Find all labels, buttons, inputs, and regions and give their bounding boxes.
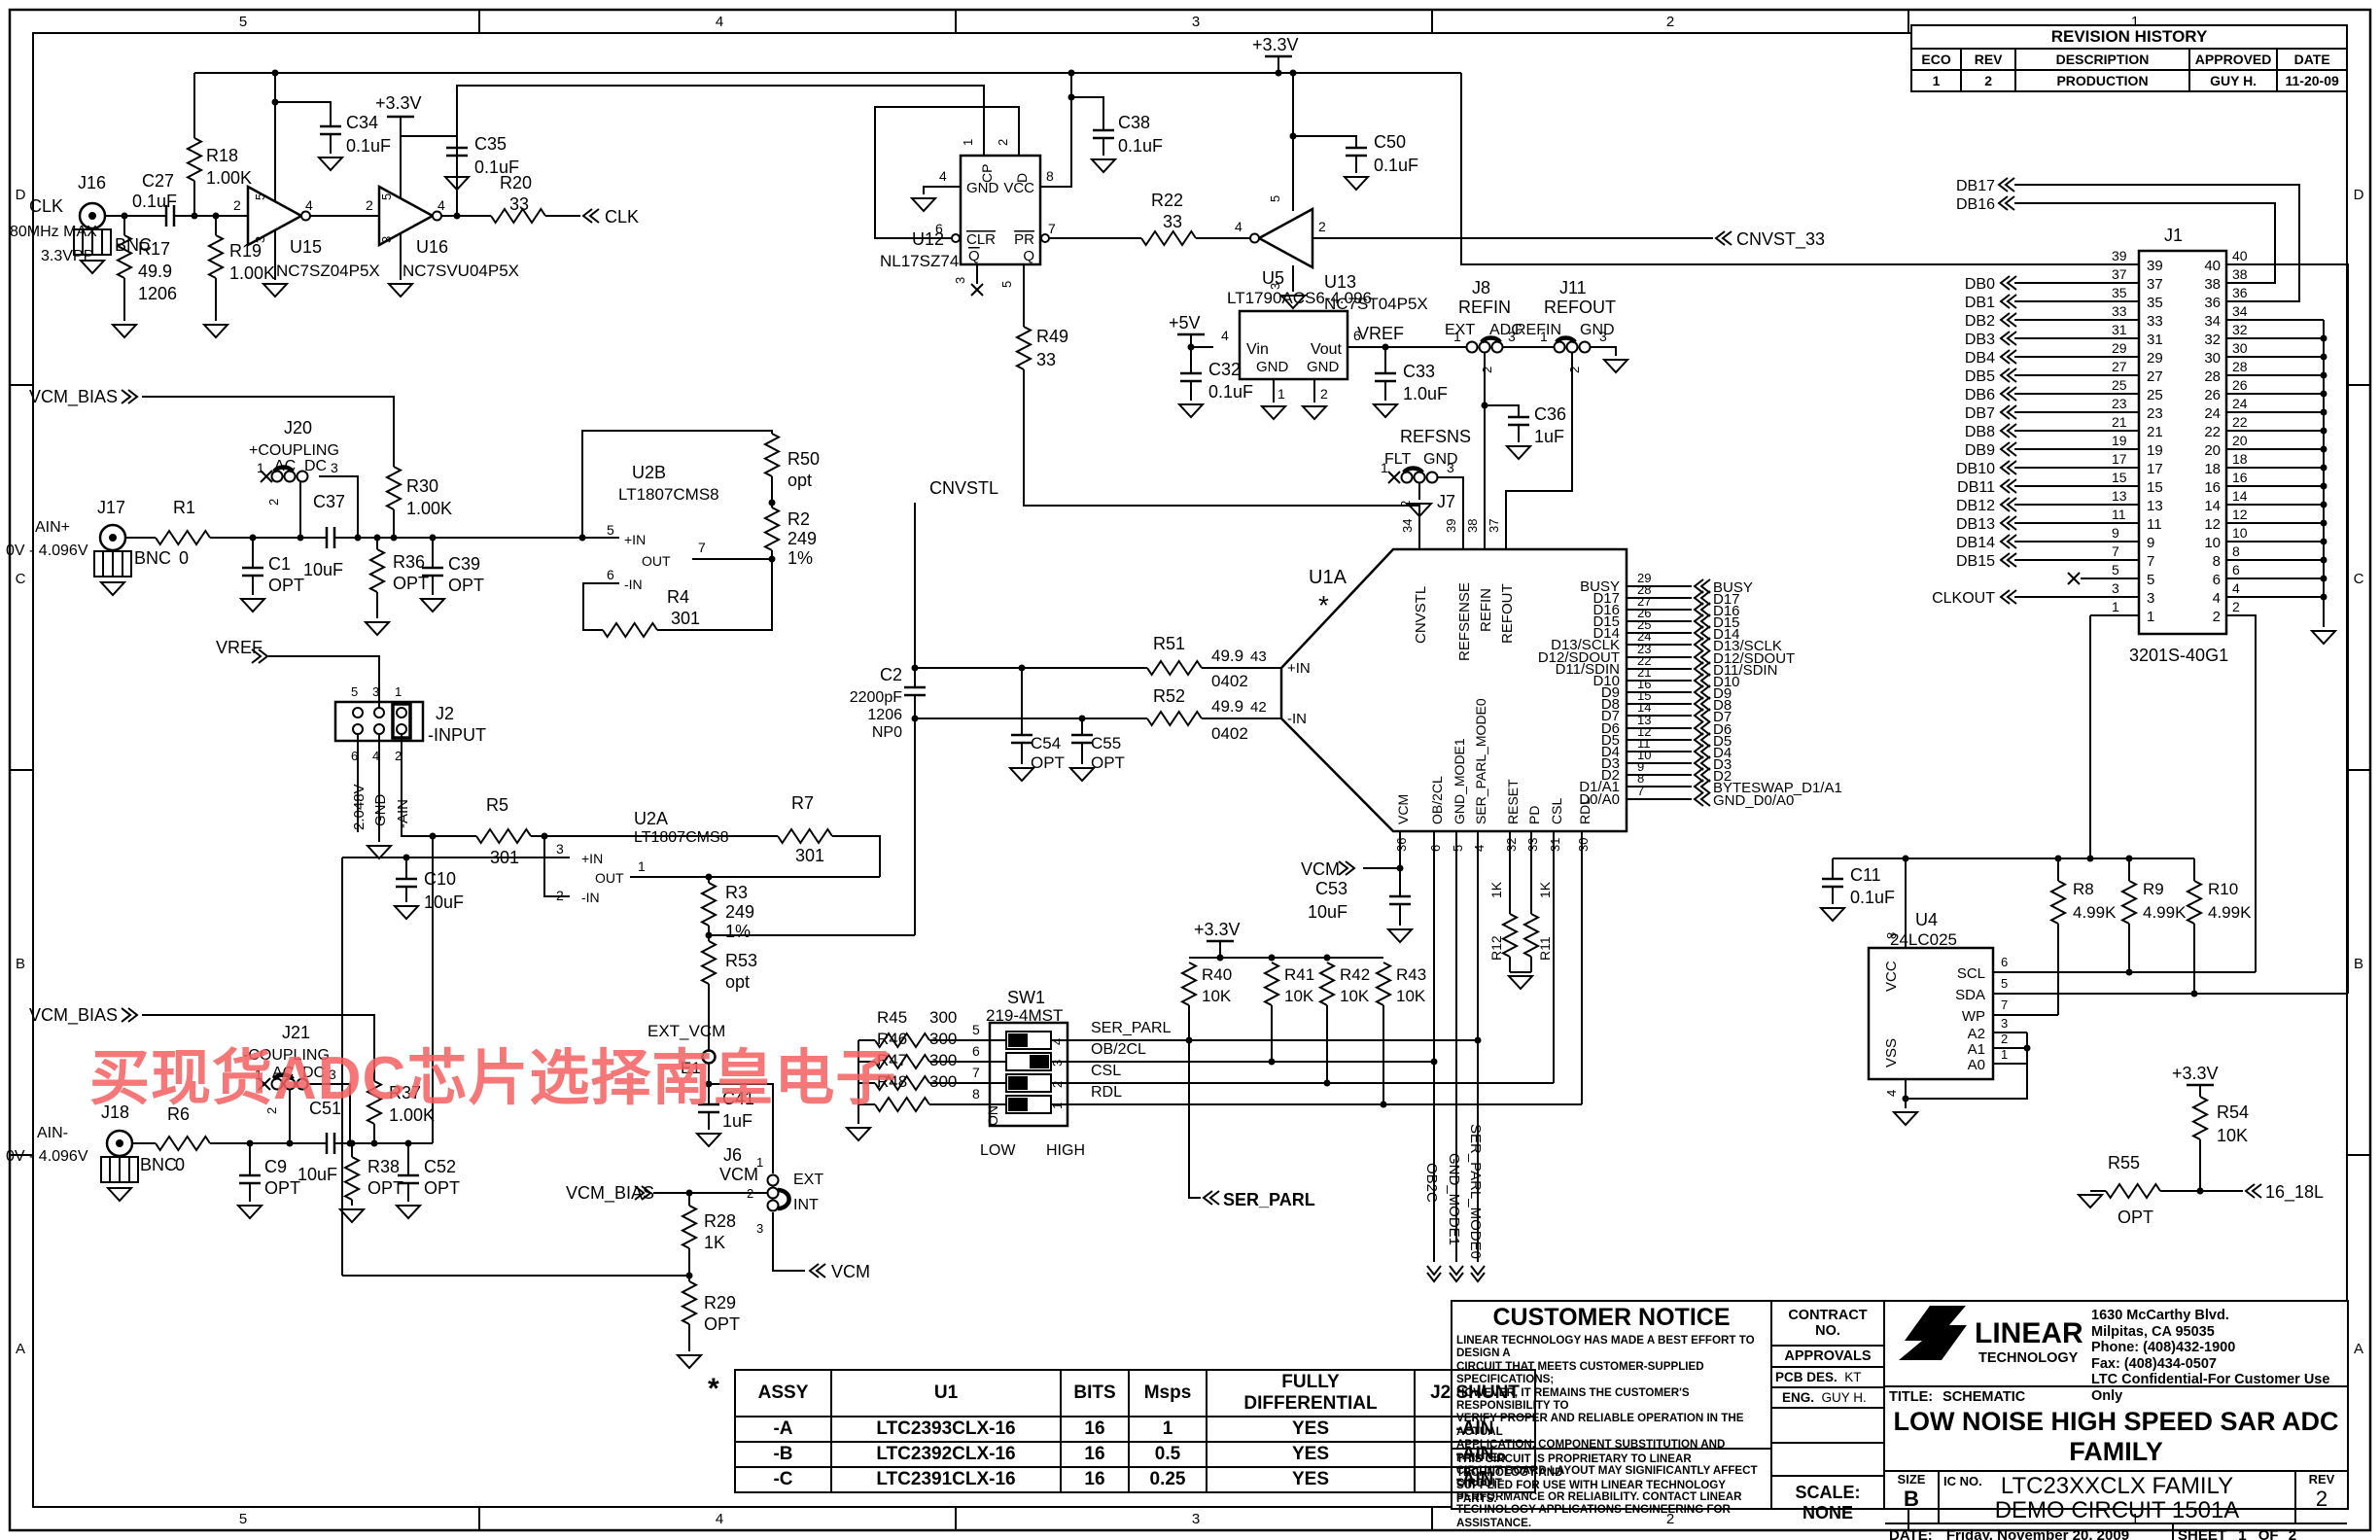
svg-text:AIN+: AIN+ bbox=[35, 519, 70, 536]
svg-text:1: 1 bbox=[2112, 599, 2119, 614]
approvals-label: APPROVALS bbox=[1772, 1347, 1883, 1368]
svg-text:+3.3V: +3.3V bbox=[1194, 920, 1241, 939]
svg-text:3: 3 bbox=[1447, 460, 1454, 475]
svg-text:J7: J7 bbox=[1437, 492, 1455, 511]
pcb-des-row: PCB DES. KT bbox=[1772, 1368, 1883, 1388]
svg-text:1.00K: 1.00K bbox=[406, 499, 452, 518]
svg-text:30: 30 bbox=[2204, 350, 2221, 367]
svg-text:16_18L: 16_18L bbox=[2265, 1182, 2324, 1203]
svg-text:4: 4 bbox=[2232, 580, 2240, 596]
svg-text:SCL: SCL bbox=[1957, 965, 1985, 982]
svg-text:0402: 0402 bbox=[1211, 724, 1248, 743]
svg-text:CLK: CLK bbox=[605, 207, 639, 227]
svg-text:7: 7 bbox=[2147, 553, 2154, 570]
svg-text:5: 5 bbox=[2147, 572, 2154, 588]
svg-text:SER_PARL_MODE0: SER_PARL_MODE0 bbox=[1467, 1124, 1484, 1259]
assy-col-header: BITS bbox=[1061, 1370, 1129, 1417]
svg-text:29: 29 bbox=[2147, 350, 2163, 367]
schematic-sheet: 5544332211DDCCBBAA4321BUSY29BUSYD1728D17… bbox=[0, 0, 2380, 1540]
svg-text:A0: A0 bbox=[1968, 1057, 1985, 1073]
svg-text:CLK: CLK bbox=[29, 196, 63, 216]
svg-text:1: 1 bbox=[2001, 1047, 2008, 1062]
svg-text:J6: J6 bbox=[723, 1145, 742, 1165]
svg-text:OPT: OPT bbox=[264, 1178, 300, 1198]
svg-text:VREF: VREF bbox=[216, 638, 262, 657]
svg-text:5: 5 bbox=[2001, 976, 2008, 991]
assy-row: -BLTC2392CLX-16160.5YES-AIN bbox=[735, 1442, 1535, 1467]
svg-text:5: 5 bbox=[1451, 845, 1465, 852]
svg-text:7: 7 bbox=[1048, 221, 1056, 236]
svg-text:5: 5 bbox=[972, 1022, 980, 1037]
svg-text:B: B bbox=[16, 956, 25, 972]
svg-text:GND: GND bbox=[1580, 322, 1615, 338]
svg-text:1%: 1% bbox=[725, 922, 751, 941]
svg-text:3: 3 bbox=[1599, 329, 1607, 344]
svg-text:GND: GND bbox=[372, 794, 389, 827]
svg-text:C39: C39 bbox=[448, 554, 480, 574]
offpage-chevron bbox=[2001, 313, 2016, 327]
svg-text:80MHz MAX: 80MHz MAX bbox=[10, 224, 97, 240]
offpage-chevron bbox=[2001, 387, 2016, 401]
svg-text:3: 3 bbox=[331, 460, 338, 475]
svg-text:7: 7 bbox=[2112, 543, 2119, 559]
svg-text:22: 22 bbox=[2204, 424, 2221, 440]
main-title: LOW NOISE HIGH SPEED SAR ADC FAMILY bbox=[1885, 1407, 2347, 1472]
svg-text:R12: R12 bbox=[1488, 935, 1504, 961]
svg-text:U2A: U2A bbox=[634, 809, 668, 828]
svg-text:DB8: DB8 bbox=[1965, 424, 1995, 440]
svg-text:R41: R41 bbox=[1284, 965, 1314, 984]
svg-text:SW1: SW1 bbox=[1007, 988, 1045, 1007]
svg-text:R43: R43 bbox=[1396, 965, 1426, 984]
svg-text:38: 38 bbox=[1465, 519, 1480, 533]
svg-text:LT1807CMS8: LT1807CMS8 bbox=[618, 485, 719, 504]
inverter-u13 bbox=[1250, 209, 1312, 267]
svg-text:0: 0 bbox=[179, 548, 189, 568]
svg-text:PR: PR bbox=[1014, 231, 1034, 248]
svg-text:VSS: VSS bbox=[1883, 1038, 1900, 1067]
svg-text:R3: R3 bbox=[725, 883, 748, 902]
svg-text:1uF: 1uF bbox=[1534, 427, 1564, 446]
svg-text:-IN: -IN bbox=[581, 890, 600, 905]
svg-text:25: 25 bbox=[2112, 377, 2127, 393]
offpage-chevron bbox=[1450, 1266, 1463, 1281]
svg-text:0402: 0402 bbox=[1211, 672, 1248, 690]
svg-text:R40: R40 bbox=[1202, 965, 1232, 984]
svg-text:7: 7 bbox=[2001, 997, 2008, 1012]
svg-text:DB14: DB14 bbox=[1956, 535, 1995, 551]
svg-text:18: 18 bbox=[2232, 451, 2248, 467]
svg-text:CNVST_33: CNVST_33 bbox=[1736, 229, 1825, 250]
svg-text:ON: ON bbox=[985, 1105, 1000, 1126]
svg-text:U2B: U2B bbox=[632, 463, 666, 482]
svg-text:1K: 1K bbox=[1537, 881, 1553, 898]
svg-text:23: 23 bbox=[2147, 405, 2163, 422]
svg-text:13: 13 bbox=[2147, 498, 2163, 514]
ic-line1: LTC23XXCLX FAMILY bbox=[1940, 1474, 2294, 1498]
svg-text:1206: 1206 bbox=[867, 707, 902, 723]
svg-text:32: 32 bbox=[2204, 332, 2221, 348]
svg-text:0: 0 bbox=[175, 1155, 185, 1174]
svg-text:+3.3V: +3.3V bbox=[1252, 35, 1299, 54]
svg-text:CSL: CSL bbox=[1091, 1063, 1121, 1079]
svg-text:2: 2 bbox=[747, 1186, 753, 1201]
svg-text:49.9: 49.9 bbox=[138, 262, 172, 281]
svg-text:11: 11 bbox=[2147, 516, 2162, 533]
svg-text:3: 3 bbox=[379, 236, 394, 243]
eng-row: ENG. GUY H. bbox=[1772, 1388, 1883, 1409]
svg-text:10K: 10K bbox=[1284, 987, 1314, 1005]
svg-text:14: 14 bbox=[2204, 498, 2221, 514]
svg-text:300: 300 bbox=[929, 1030, 957, 1048]
svg-text:5: 5 bbox=[253, 193, 267, 200]
svg-text:5: 5 bbox=[239, 1511, 247, 1527]
svg-text:*: * bbox=[1318, 590, 1329, 620]
svg-text:12: 12 bbox=[2232, 507, 2248, 522]
svg-text:7: 7 bbox=[972, 1065, 980, 1080]
svg-text:1: 1 bbox=[257, 460, 264, 475]
svg-text:DB1: DB1 bbox=[1965, 295, 1995, 311]
svg-text:2: 2 bbox=[1567, 367, 1582, 373]
svg-text:C55: C55 bbox=[1091, 734, 1121, 752]
svg-text:6: 6 bbox=[351, 749, 358, 763]
svg-text:DB5: DB5 bbox=[1965, 368, 1995, 385]
svg-text:1: 1 bbox=[2147, 609, 2154, 625]
svg-text:REFSENSE: REFSENSE bbox=[1456, 582, 1473, 661]
svg-text:22: 22 bbox=[2232, 414, 2248, 430]
svg-text:-INPUT: -INPUT bbox=[428, 725, 486, 745]
svg-text:21: 21 bbox=[2147, 424, 2163, 440]
svg-text:36: 36 bbox=[2204, 295, 2221, 311]
svg-text:24: 24 bbox=[2204, 405, 2221, 422]
svg-text:10K: 10K bbox=[1340, 987, 1370, 1005]
offpage-chevron bbox=[2001, 295, 2016, 308]
bnc-j17 bbox=[94, 525, 131, 595]
bnc-j18 bbox=[101, 1131, 138, 1201]
svg-text:Vin: Vin bbox=[1246, 341, 1269, 358]
svg-text:29: 29 bbox=[2112, 340, 2127, 356]
offpage-chevron bbox=[1427, 1266, 1441, 1281]
svg-text:A: A bbox=[16, 1341, 25, 1357]
svg-text:DB16: DB16 bbox=[1956, 196, 1995, 213]
svg-text:OPT: OPT bbox=[393, 574, 429, 593]
jumper-j11 bbox=[1555, 338, 1591, 353]
svg-text:R42: R42 bbox=[1340, 965, 1370, 984]
svg-text:D: D bbox=[1014, 173, 1030, 183]
svg-text:R49: R49 bbox=[1036, 327, 1068, 346]
svg-text:4: 4 bbox=[2213, 590, 2221, 607]
svg-text:2: 2 bbox=[996, 139, 1010, 146]
svg-text:VCM: VCM bbox=[1395, 794, 1411, 824]
svg-text:CNVSTL: CNVSTL bbox=[1413, 586, 1429, 644]
svg-text:36: 36 bbox=[2232, 285, 2248, 300]
svg-text:CP: CP bbox=[979, 164, 995, 183]
svg-text:+IN: +IN bbox=[1287, 660, 1311, 677]
svg-text:+IN: +IN bbox=[581, 851, 603, 866]
svg-text:OB/2CL: OB/2CL bbox=[1429, 776, 1445, 824]
assy-col-header: FULLY DIFFERENTIAL bbox=[1207, 1370, 1415, 1417]
svg-text:301: 301 bbox=[795, 846, 824, 865]
svg-text:3: 3 bbox=[1050, 1060, 1065, 1067]
icno-label: IC NO. bbox=[1943, 1474, 1982, 1488]
svg-text:0V - 4.096V: 0V - 4.096V bbox=[6, 1148, 88, 1165]
ic-number: LTC23XXCLX FAMILY DEMO CIRCUIT 1501A bbox=[1940, 1472, 2294, 1522]
svg-text:3: 3 bbox=[756, 1221, 763, 1236]
offpage-chevron bbox=[2001, 405, 2016, 419]
svg-text:33: 33 bbox=[1525, 838, 1540, 852]
svg-text:5: 5 bbox=[607, 522, 614, 538]
svg-text:REFIN: REFIN bbox=[1458, 297, 1511, 317]
svg-text:LT1807CMS8: LT1807CMS8 bbox=[634, 829, 729, 846]
svg-text:219-4MST: 219-4MST bbox=[986, 1006, 1063, 1025]
offpage-chevron bbox=[1999, 196, 2014, 210]
svg-text:49.9: 49.9 bbox=[1211, 647, 1243, 665]
svg-text:2: 2 bbox=[1050, 1081, 1065, 1088]
svg-text:C37: C37 bbox=[313, 492, 345, 511]
svg-text:2: 2 bbox=[1480, 367, 1494, 373]
svg-text:32: 32 bbox=[1504, 838, 1519, 852]
ic-line2: DEMO CIRCUIT 1501A bbox=[1940, 1498, 2294, 1522]
svg-text:A2: A2 bbox=[1968, 1026, 1985, 1042]
svg-text:49.9: 49.9 bbox=[1211, 697, 1243, 716]
svg-text:C1: C1 bbox=[268, 554, 291, 574]
assy-col-header: J2 SHUNT bbox=[1415, 1370, 1535, 1417]
svg-text:6: 6 bbox=[1428, 845, 1443, 852]
assy-rows: -ALTC2393CLX-16161YES-AIN-BLTC2392CLX-16… bbox=[735, 1417, 1535, 1492]
offpage-chevron bbox=[2001, 553, 2016, 567]
contract-no-label: CONTRACT NO. bbox=[1772, 1302, 1883, 1347]
date-value: Friday, November 20, 2009 bbox=[1937, 1527, 2129, 1540]
svg-text:18: 18 bbox=[2204, 461, 2221, 477]
svg-text:33: 33 bbox=[509, 194, 529, 214]
svg-text:C54: C54 bbox=[1031, 734, 1061, 752]
offpage-chevron bbox=[2001, 498, 2016, 511]
lt-logo: LINEAR TECHNOLOGY bbox=[1885, 1302, 2091, 1385]
svg-text:0V - 4.096V: 0V - 4.096V bbox=[6, 542, 88, 559]
svg-text:+IN: +IN bbox=[624, 532, 646, 547]
svg-text:R50: R50 bbox=[787, 449, 820, 469]
svg-text:4: 4 bbox=[1884, 1090, 1899, 1097]
svg-text:R17: R17 bbox=[138, 239, 170, 259]
svg-text:WP: WP bbox=[1962, 1008, 1985, 1025]
svg-text:-IN: -IN bbox=[624, 577, 643, 592]
svg-text:3: 3 bbox=[1192, 1511, 1200, 1527]
svg-text:VREF: VREF bbox=[1357, 324, 1404, 343]
svg-text:43: 43 bbox=[1250, 648, 1267, 665]
svg-text:40: 40 bbox=[2232, 248, 2248, 263]
svg-text:J1: J1 bbox=[2164, 226, 2183, 245]
svg-text:+3.3V: +3.3V bbox=[375, 93, 422, 113]
svg-text:8: 8 bbox=[2213, 553, 2221, 570]
svg-text:C2: C2 bbox=[880, 665, 902, 684]
svg-text:17: 17 bbox=[2147, 461, 2163, 477]
svg-text:23: 23 bbox=[2112, 396, 2127, 411]
jumper-j8 bbox=[1467, 338, 1503, 353]
svg-text:1: 1 bbox=[756, 1155, 763, 1170]
svg-text:4: 4 bbox=[716, 14, 723, 30]
svg-text:1206: 1206 bbox=[138, 284, 177, 303]
svg-text:11: 11 bbox=[2112, 507, 2126, 522]
offpage-chevron bbox=[2001, 368, 2016, 382]
svg-text:34: 34 bbox=[2204, 313, 2221, 330]
svg-text:5: 5 bbox=[999, 281, 1014, 288]
eng-label: ENG. bbox=[1782, 1390, 1814, 1405]
svg-text:4.99K: 4.99K bbox=[2143, 903, 2187, 922]
svg-text:35: 35 bbox=[2147, 295, 2163, 311]
svg-text:GND_D0/A0: GND_D0/A0 bbox=[1713, 792, 1794, 809]
assy-table-wrap: * ASSYU1BITSMspsFULLY DIFFERENTIALJ2 SHU… bbox=[708, 1369, 1536, 1493]
svg-text:13: 13 bbox=[2112, 488, 2127, 504]
svg-text:6: 6 bbox=[2001, 955, 2008, 969]
svg-text:OB/2CL: OB/2CL bbox=[1091, 1041, 1146, 1058]
title-value: SCHEMATIC bbox=[1937, 1389, 2025, 1405]
svg-text:U15: U15 bbox=[290, 237, 322, 257]
svg-text:16: 16 bbox=[2204, 479, 2221, 496]
svg-text:3: 3 bbox=[2001, 1016, 2008, 1031]
svg-text:opt: opt bbox=[787, 471, 812, 490]
svg-text:2: 2 bbox=[395, 749, 402, 763]
svg-text:R10: R10 bbox=[2208, 880, 2238, 898]
svg-text:7: 7 bbox=[698, 540, 706, 555]
labels-layer: BUSY29BUSYD1728D17D1627D16D1526D15D1425D… bbox=[6, 35, 2324, 1334]
svg-text:+5V: +5V bbox=[1169, 313, 1201, 332]
svg-text:R51: R51 bbox=[1153, 634, 1185, 653]
eng-value: GUY H. bbox=[1822, 1390, 1867, 1405]
svg-text:3: 3 bbox=[372, 684, 379, 699]
offpage-chevron bbox=[810, 1264, 825, 1277]
svg-text:opt: opt bbox=[725, 972, 750, 992]
svg-text:C9: C9 bbox=[264, 1157, 287, 1176]
svg-text:39: 39 bbox=[2112, 248, 2127, 263]
svg-text:0.1uF: 0.1uF bbox=[1850, 888, 1895, 907]
svg-text:1K: 1K bbox=[1488, 881, 1504, 898]
title-label: TITLE: bbox=[1889, 1389, 1933, 1405]
svg-text:5: 5 bbox=[2112, 562, 2119, 577]
svg-text:OPT: OPT bbox=[704, 1314, 740, 1334]
offpage-chevron bbox=[1999, 178, 2014, 192]
svg-text:4: 4 bbox=[305, 197, 313, 213]
offpage-chevron bbox=[2001, 479, 2016, 493]
svg-text:33: 33 bbox=[2147, 313, 2163, 330]
svg-text:VCM_BIAS: VCM_BIAS bbox=[29, 387, 118, 407]
svg-text:VCM: VCM bbox=[831, 1262, 870, 1281]
sheet-total: 2 bbox=[2283, 1527, 2296, 1540]
svg-text:5: 5 bbox=[351, 684, 358, 699]
svg-text:CSL: CSL bbox=[1549, 798, 1564, 824]
svg-text:DB4: DB4 bbox=[1965, 350, 1995, 367]
svg-text:J11: J11 bbox=[1559, 278, 1587, 297]
offpage-chevron bbox=[2246, 1184, 2261, 1198]
svg-text:31: 31 bbox=[2147, 332, 2163, 348]
svg-text:U1A: U1A bbox=[1309, 567, 1347, 588]
svg-text:31: 31 bbox=[1548, 838, 1562, 852]
svg-text:2: 2 bbox=[233, 197, 241, 213]
svg-text:37: 37 bbox=[2147, 276, 2163, 293]
svg-text:R38: R38 bbox=[367, 1157, 400, 1176]
svg-text:7: 7 bbox=[1637, 784, 1644, 798]
svg-text:4: 4 bbox=[1472, 845, 1487, 852]
svg-text:10: 10 bbox=[2204, 535, 2221, 551]
svg-text:BNC: BNC bbox=[134, 548, 171, 568]
svg-text:OPT: OPT bbox=[448, 576, 484, 595]
svg-text:33: 33 bbox=[1163, 212, 1182, 231]
svg-text:R30: R30 bbox=[406, 476, 438, 496]
svg-text:SER_PARL: SER_PARL bbox=[1091, 1020, 1172, 1036]
svg-text:AIN-: AIN- bbox=[37, 1125, 68, 1141]
svg-text:DB12: DB12 bbox=[1956, 498, 1995, 514]
svg-text:LT1790ACS6-4.096: LT1790ACS6-4.096 bbox=[1227, 289, 1372, 307]
svg-text:300: 300 bbox=[929, 1051, 957, 1069]
svg-text:300: 300 bbox=[929, 1072, 957, 1091]
svg-text:301: 301 bbox=[490, 848, 519, 867]
svg-text:10K: 10K bbox=[2217, 1126, 2248, 1145]
svg-text:2: 2 bbox=[2213, 609, 2221, 625]
svg-text:4.99K: 4.99K bbox=[2208, 903, 2252, 922]
assy-col-header: Msps bbox=[1129, 1370, 1207, 1417]
svg-text:38: 38 bbox=[2232, 266, 2248, 282]
svg-text:Vout: Vout bbox=[1311, 341, 1343, 358]
offpage-chevron bbox=[2001, 516, 2016, 530]
svg-text:C35: C35 bbox=[474, 134, 507, 154]
date-row: DATE: Friday, November 20, 2009 bbox=[1885, 1524, 2172, 1540]
svg-text:-AIN: -AIN bbox=[395, 799, 411, 828]
svg-text:10uF: 10uF bbox=[303, 560, 343, 579]
svg-text:BNC: BNC bbox=[140, 1155, 177, 1174]
approvals-block: CONTRACT NO. APPROVALS PCB DES. KT ENG. … bbox=[1770, 1300, 1885, 1510]
svg-text:33: 33 bbox=[1036, 350, 1056, 369]
offpage-chevron bbox=[122, 1008, 137, 1022]
svg-text:DB10: DB10 bbox=[1956, 461, 1995, 477]
svg-text:32: 32 bbox=[2232, 322, 2248, 337]
size-cell: SIZE B bbox=[1885, 1472, 1940, 1522]
svg-text:REFIN: REFIN bbox=[1515, 322, 1561, 338]
svg-text:1: 1 bbox=[1540, 329, 1548, 344]
svg-text:2: 2 bbox=[1318, 219, 1326, 234]
svg-text:34: 34 bbox=[1400, 519, 1415, 533]
svg-text:RDL: RDL bbox=[1577, 797, 1592, 824]
svg-text:249: 249 bbox=[787, 529, 817, 548]
svg-text:R55: R55 bbox=[2108, 1153, 2140, 1172]
revision-headers: ECOREVDESCRIPTIONAPPROVEDDATE bbox=[1912, 50, 2346, 71]
svg-text:NC7SVU04P5X: NC7SVU04P5X bbox=[402, 262, 519, 280]
assy-col-header: ASSY bbox=[735, 1370, 831, 1417]
svg-text:J16: J16 bbox=[78, 173, 106, 192]
svg-text:28: 28 bbox=[2204, 368, 2221, 385]
svg-text:8: 8 bbox=[972, 1086, 980, 1102]
svg-text:10K: 10K bbox=[1396, 987, 1426, 1005]
svg-text:3: 3 bbox=[2147, 590, 2154, 607]
svg-text:R5: R5 bbox=[486, 795, 508, 815]
assy-row: -CLTC2391CLX-16160.25YES-AIN bbox=[735, 1467, 1535, 1492]
svg-text:2: 2 bbox=[2232, 599, 2240, 614]
svg-text:31: 31 bbox=[2112, 322, 2127, 337]
offpage-chevron bbox=[2001, 332, 2016, 345]
svg-text:8: 8 bbox=[2232, 543, 2240, 559]
svg-text:DB6: DB6 bbox=[1965, 387, 1995, 403]
svg-text:DB17: DB17 bbox=[1956, 178, 1995, 194]
assy-row: -ALTC2393CLX-16161YES-AIN bbox=[735, 1417, 1535, 1442]
svg-text:OPT: OPT bbox=[2117, 1207, 2153, 1227]
dip-sw1: 4321 bbox=[990, 1023, 1067, 1126]
svg-text:D: D bbox=[16, 187, 26, 203]
svg-text:OPT: OPT bbox=[1091, 753, 1125, 772]
svg-text:5: 5 bbox=[239, 14, 247, 30]
offpage-chevron bbox=[2001, 350, 2016, 364]
offpage-chevron bbox=[2001, 442, 2016, 456]
svg-text:R4: R4 bbox=[667, 587, 689, 607]
svg-text:+3.3V: +3.3V bbox=[2172, 1064, 2219, 1083]
svg-text:DB11: DB11 bbox=[1957, 479, 1995, 496]
